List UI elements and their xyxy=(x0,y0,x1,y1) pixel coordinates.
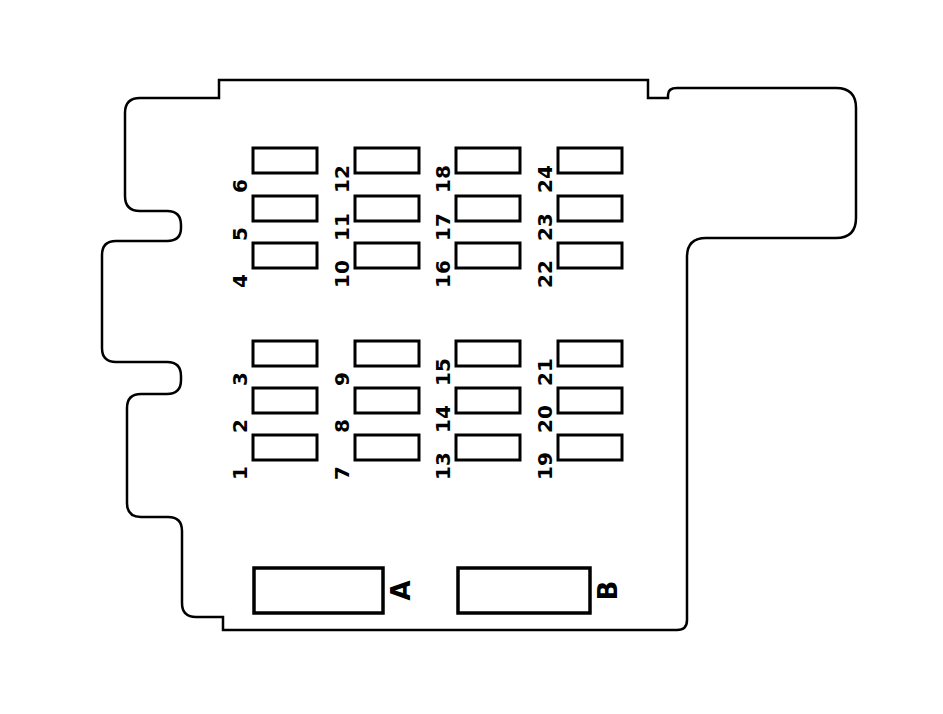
fuse-rect-16 xyxy=(456,243,520,268)
connector-letter-label: B xyxy=(593,581,623,601)
fuse-rect-23 xyxy=(558,196,622,221)
fuse-number-label: 15 xyxy=(431,358,455,386)
fuse-rect-9 xyxy=(355,341,419,366)
fuse-rect-6 xyxy=(253,148,317,173)
fuse-rect-13 xyxy=(456,435,520,460)
diagram-canvas: 654121110181716242322321987151413212019 … xyxy=(0,0,943,714)
fuse-number-label: 14 xyxy=(431,405,455,433)
fuse-rect-18 xyxy=(456,148,520,173)
fuse-number-label: 7 xyxy=(330,466,354,480)
fuse-number-label: 3 xyxy=(228,372,252,386)
fuse-rect-8 xyxy=(355,388,419,413)
fuse-rect-10 xyxy=(355,243,419,268)
fuse-number-label: 23 xyxy=(533,213,557,241)
fuse-number-label: 16 xyxy=(431,260,455,288)
fuse-number-label: 9 xyxy=(330,372,354,386)
fuse-rect-14 xyxy=(456,388,520,413)
fuse-rect-24 xyxy=(558,148,622,173)
fuse-number-label: 10 xyxy=(330,260,354,288)
fuse-rect-1 xyxy=(253,435,317,460)
fuse-number-label: 22 xyxy=(533,260,557,288)
fuse-rect-7 xyxy=(355,435,419,460)
fuse-rect-20 xyxy=(558,388,622,413)
fuse-number-label: 4 xyxy=(228,274,252,288)
fuse-number-label: 1 xyxy=(228,466,252,480)
fuse-number-label: 12 xyxy=(330,165,354,193)
fuse-number-label: 21 xyxy=(533,358,557,386)
fuse-number-label: 2 xyxy=(228,419,252,433)
fuse-rect-2 xyxy=(253,388,317,413)
fuse-number-label: 6 xyxy=(228,179,252,193)
fuse-rect-5 xyxy=(253,196,317,221)
fuse-rect-17 xyxy=(456,196,520,221)
fuse-panel-diagram: 654121110181716242322321987151413212019 … xyxy=(0,0,943,714)
fuse-rect-4 xyxy=(253,243,317,268)
fuse-rect-15 xyxy=(456,341,520,366)
fuse-rect-12 xyxy=(355,148,419,173)
fuse-number-label: 20 xyxy=(533,405,557,433)
fuse-rect-3 xyxy=(253,341,317,366)
fuse-number-label: 11 xyxy=(330,213,354,241)
fuse-number-label: 24 xyxy=(533,165,557,193)
fuse-number-label: 13 xyxy=(431,452,455,480)
fuse-rect-22 xyxy=(558,243,622,268)
connector-letter-label: A xyxy=(386,580,416,600)
connector-rect-A xyxy=(254,568,383,613)
fuse-number-label: 17 xyxy=(431,213,455,241)
fuse-number-label: 8 xyxy=(330,419,354,433)
connector-rect-B xyxy=(458,568,590,613)
fuse-number-label: 5 xyxy=(228,227,252,241)
fuse-number-label: 19 xyxy=(533,452,557,480)
fuse-rect-19 xyxy=(558,435,622,460)
fuse-rect-21 xyxy=(558,341,622,366)
fuse-rect-11 xyxy=(355,196,419,221)
fuse-number-label: 18 xyxy=(431,165,455,193)
